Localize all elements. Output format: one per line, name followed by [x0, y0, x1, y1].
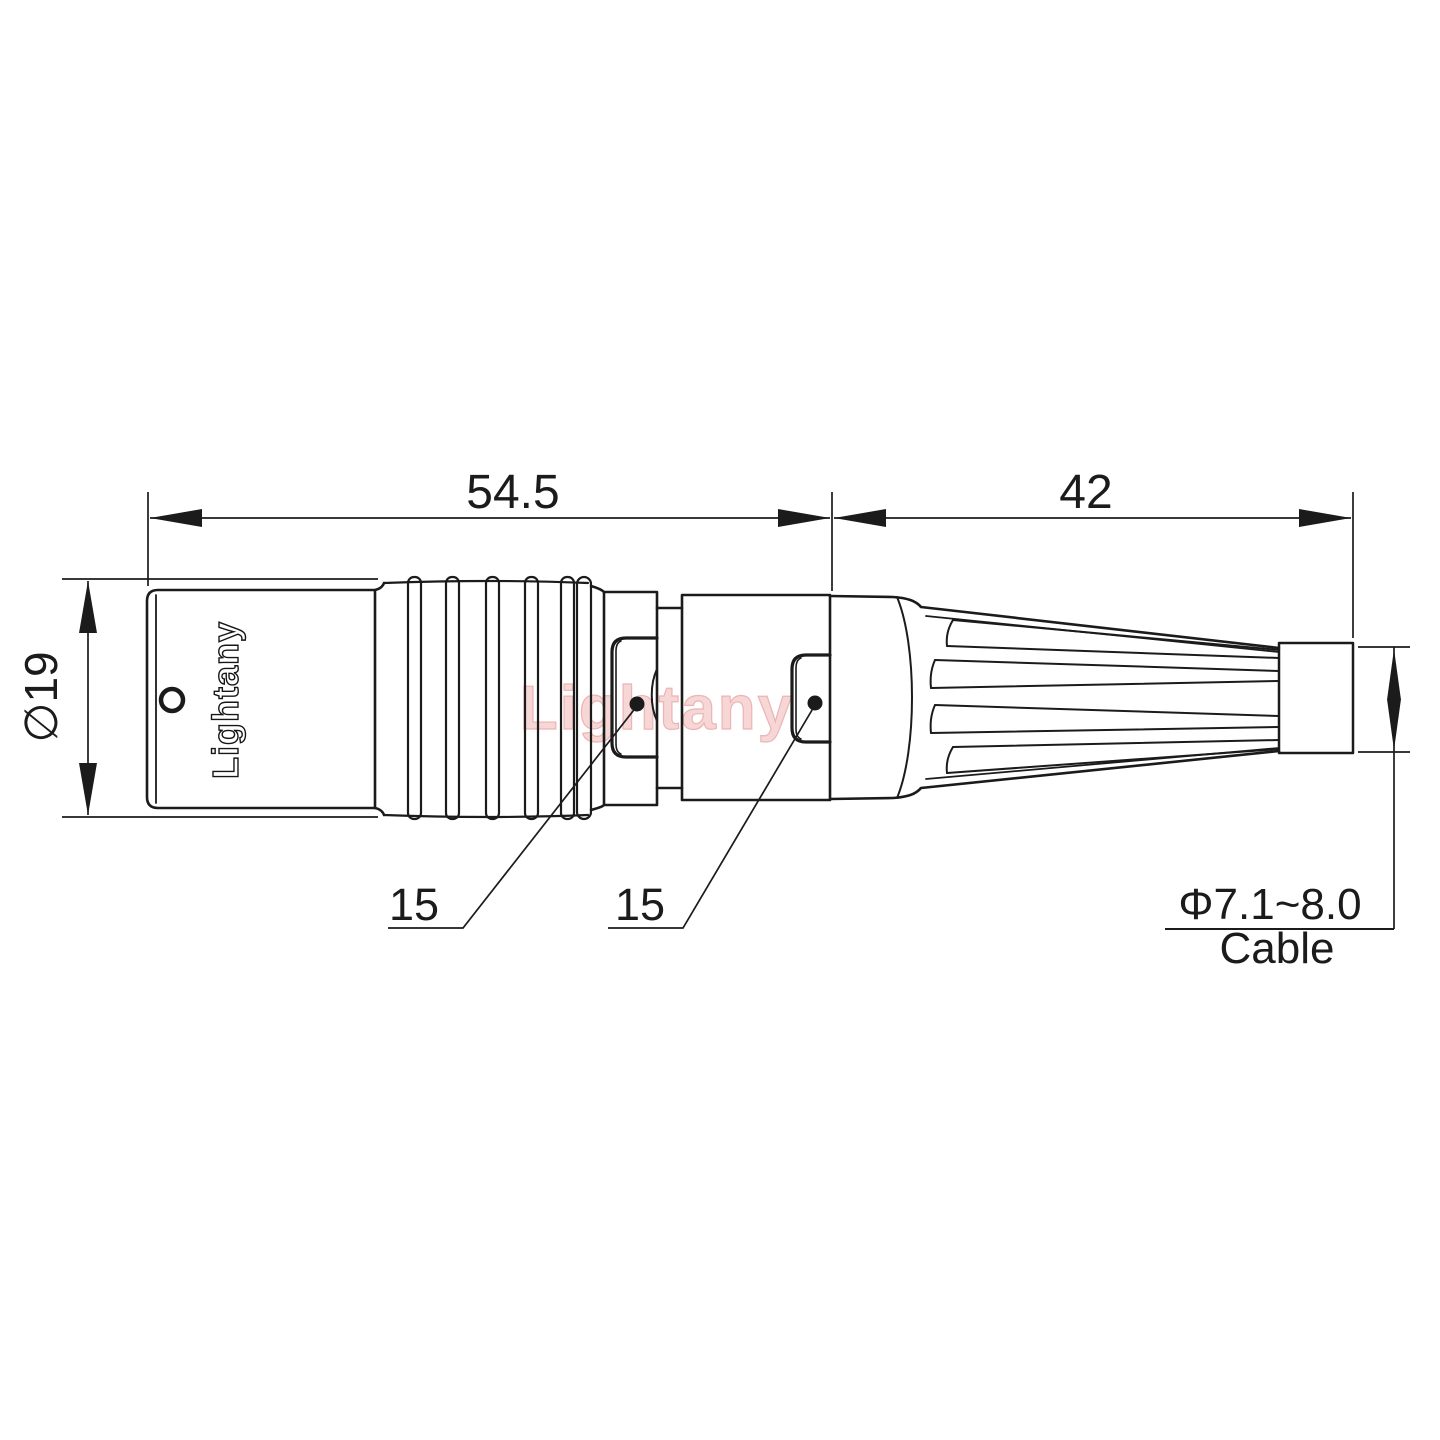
- shell-window-inner-edge: [796, 658, 801, 739]
- flute-cap: [947, 747, 953, 773]
- arrow-cable-top: [1387, 649, 1401, 700]
- rear-length-value: 42: [1059, 466, 1112, 519]
- cable-sleeve: [1279, 643, 1353, 753]
- rib: [486, 577, 499, 819]
- cone-top-outline: [830, 596, 1279, 648]
- front-length-value: 54.5: [466, 466, 559, 519]
- rib-step-top: [591, 586, 604, 592]
- flute-line: [931, 681, 1279, 688]
- arrow-cable-bottom: [1387, 699, 1401, 750]
- arrow-diameter-top: [79, 581, 97, 633]
- arrow-mid-left: [778, 509, 830, 527]
- rib: [446, 577, 459, 819]
- arrow-diameter-bottom: [79, 763, 97, 815]
- flute-cap: [931, 660, 935, 688]
- arrow-left-out: [150, 509, 202, 527]
- flute-line: [953, 620, 1279, 650]
- coupling-nut-size-value: 15: [389, 879, 439, 930]
- cable-diameter-range: Φ7.1~8.0: [1178, 880, 1361, 929]
- dimension-arrows: [79, 509, 1401, 815]
- flute-line: [935, 660, 1279, 671]
- arrow-right-out: [1299, 509, 1351, 527]
- flute-line: [931, 727, 1279, 733]
- leader-dot-nut: [630, 697, 645, 712]
- flute-line: [953, 740, 1279, 747]
- brand-engraving: Lightany: [205, 621, 246, 779]
- rib-step-bottom: [591, 805, 604, 810]
- flute-cap: [947, 620, 953, 646]
- strain-relief: [830, 596, 1279, 799]
- rib-transition-bottom: [375, 808, 384, 815]
- connector-drawing: Lightany: [0, 0, 1440, 1440]
- leader-dot-shell: [808, 696, 823, 711]
- collar-shoulder-curve: [897, 597, 912, 798]
- drawing-canvas: Lightany: [0, 0, 1440, 1440]
- rib-transition-top: [375, 583, 384, 590]
- orientation-dot: [161, 689, 183, 711]
- body-diameter-value: ∅19: [15, 651, 67, 742]
- cone-bottom-outline: [830, 751, 1279, 799]
- cable-label: Cable: [1220, 924, 1335, 973]
- flute-cap: [931, 705, 935, 733]
- backshell-size-value: 15: [615, 879, 665, 930]
- flute-line: [935, 705, 1279, 716]
- arrow-mid-right: [834, 509, 886, 527]
- rib: [408, 577, 421, 819]
